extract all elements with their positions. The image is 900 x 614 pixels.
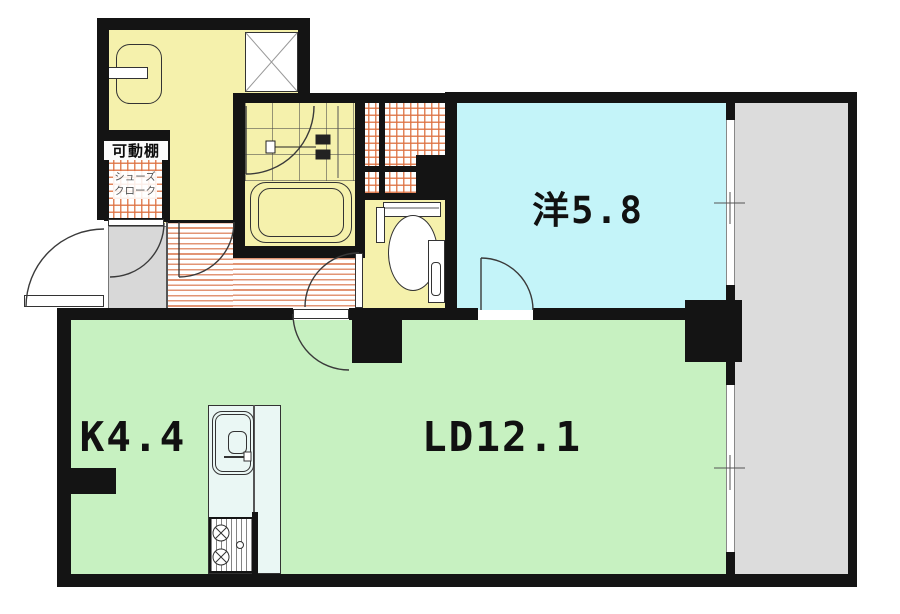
entrance-door-leaf (24, 295, 104, 307)
wall-bedroom-window-top (726, 103, 735, 120)
wall-closet-divider-h (361, 166, 418, 172)
wall-hall-bottom-a (57, 308, 293, 320)
toilet-control-panel (376, 207, 385, 243)
washbasin-faucet (106, 67, 148, 79)
bedroom-balcony-window (726, 120, 735, 285)
shoes-closet-text-line2: クローク (113, 185, 157, 199)
wall-top-upper (97, 18, 310, 30)
pillar-hall-ld (352, 318, 402, 363)
wall-kitchen-protrusion (71, 468, 116, 494)
shower-tile-floor (245, 103, 355, 181)
movable-shelf-text: 可動棚 (112, 140, 160, 161)
wall-bath-top (233, 93, 452, 103)
shoes-closet-label: シューズ クローク (106, 163, 164, 207)
wall-bedroom-window-bottom (726, 285, 735, 310)
balcony-rail (848, 92, 857, 587)
wall-washroom-hall-line (166, 220, 233, 223)
washing-machine-pan (245, 32, 298, 92)
living-dining-label: LD12.1 (422, 413, 582, 461)
toilet-door-leaf (355, 253, 363, 308)
shoes-closet-door-leaf (108, 219, 164, 226)
entrance-floor (108, 226, 169, 309)
washroom-area-lower (163, 93, 233, 223)
shoes-closet-text-line1: シューズ (113, 171, 156, 185)
wall-ld-window-top (726, 362, 735, 385)
floor-plan: 可動棚 シューズ クローク 洋5.8 LD12.1 K4.4 (0, 0, 900, 614)
wall-closet-divider-v (379, 103, 385, 193)
hallway-floor (166, 222, 233, 308)
wall-bedroom-left (445, 93, 457, 320)
ld-door-leaf (293, 309, 349, 319)
stove-side-wall (252, 512, 258, 574)
wall-bottom (57, 574, 857, 587)
wall-ldk-left (57, 308, 71, 587)
kitchen-label: K4.4 (80, 413, 187, 461)
genkan-hall-line (166, 222, 168, 308)
hallway-floor-east (233, 258, 355, 308)
wall-washer-right (298, 18, 310, 103)
wall-toilet-left (355, 200, 363, 253)
wall-ld-window-bottom (726, 552, 735, 574)
kitchen-sink-notch (228, 431, 247, 454)
wall-closet-bottom (355, 193, 447, 200)
wall-bedroom-top (445, 92, 857, 103)
hand-basin (431, 262, 441, 296)
ld-balcony-window (726, 385, 735, 552)
western-room-label: 洋5.8 (532, 180, 644, 234)
bathtub-inner (258, 188, 344, 237)
movable-shelf-label: 可動棚 (104, 141, 168, 160)
balcony-floor (735, 103, 848, 574)
stove (209, 517, 254, 573)
wall-bath-left (233, 93, 245, 258)
wall-bath-bottom (233, 246, 365, 258)
